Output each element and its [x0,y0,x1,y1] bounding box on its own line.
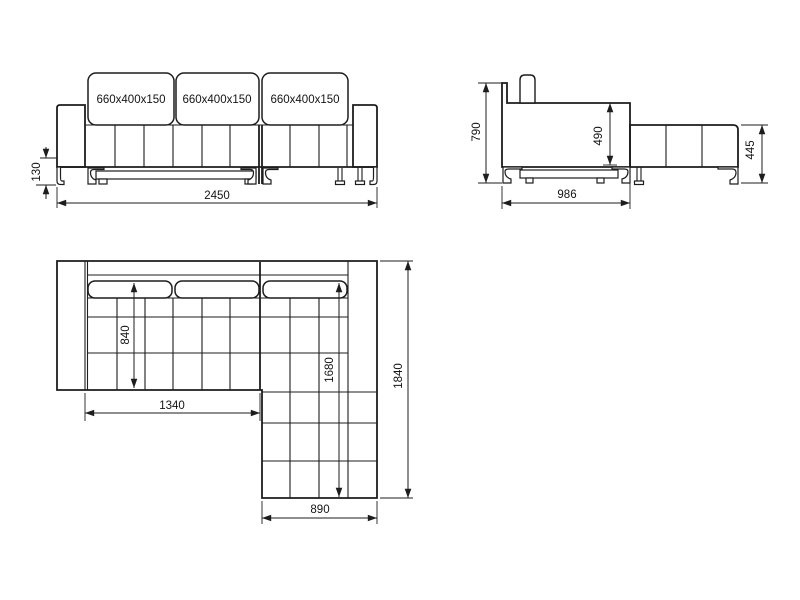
dim-plan-seat-width: 1340 [85,393,260,421]
plan-seat-cushions [88,281,347,298]
dim-side-total-height: 790 [471,83,502,183]
dim-side-chaise-height-label: 445 [745,140,757,159]
dim-plan-seat-width-label: 1340 [159,400,185,412]
dim-plan-total-length: 1840 [380,261,413,498]
dim-side-depth-label: 986 [557,189,576,201]
dim-plan-seat-depth-label: 840 [120,325,132,344]
dim-side-chaise-height: 445 [741,125,768,183]
dim-plan-chaise-inner-length-label: 1680 [324,357,336,383]
sofa-dimension-drawing: 660x400x150 660x400x150 660x400x150 [0,0,800,600]
plan-view: 840 1340 1680 1840 890 [57,261,413,524]
dim-side-total-height-label: 790 [471,122,483,141]
dim-plan-chaise-width-label: 890 [310,504,329,516]
front-left-armrest [57,105,85,167]
dim-plan-total-length-label: 1840 [393,363,405,389]
dim-plan-chaise-width: 890 [262,501,377,524]
side-view: 790 490 986 445 [471,75,768,209]
dim-plan-chaise-inner-length: 1680 [324,283,339,497]
front-back-cushions: 660x400x150 660x400x150 660x400x150 [88,73,348,125]
cushion-2-label: 660x400x150 [182,94,251,106]
dim-front-leg-height: 130 [31,147,57,199]
cushion-1-label: 660x400x150 [96,94,165,106]
plan-cushion-3 [263,281,347,298]
plan-cushion-1 [88,281,172,298]
front-right-armrest [353,105,377,167]
plan-cushion-2 [175,281,259,298]
dim-front-total-width: 2450 [57,187,377,208]
dim-side-back-height-label: 490 [593,126,605,145]
dim-front-total-width-label: 2450 [204,190,230,202]
side-chaise [630,125,738,167]
dim-side-back-height: 490 [593,103,617,165]
side-headrest [520,75,535,103]
front-view: 660x400x150 660x400x150 660x400x150 [31,73,377,208]
technical-drawing-page: 660x400x150 660x400x150 660x400x150 [0,0,800,600]
cushion-3-label: 660x400x150 [270,94,339,106]
side-legs [503,167,738,185]
front-legs [57,167,377,185]
dim-front-leg-height-label: 130 [31,162,43,181]
